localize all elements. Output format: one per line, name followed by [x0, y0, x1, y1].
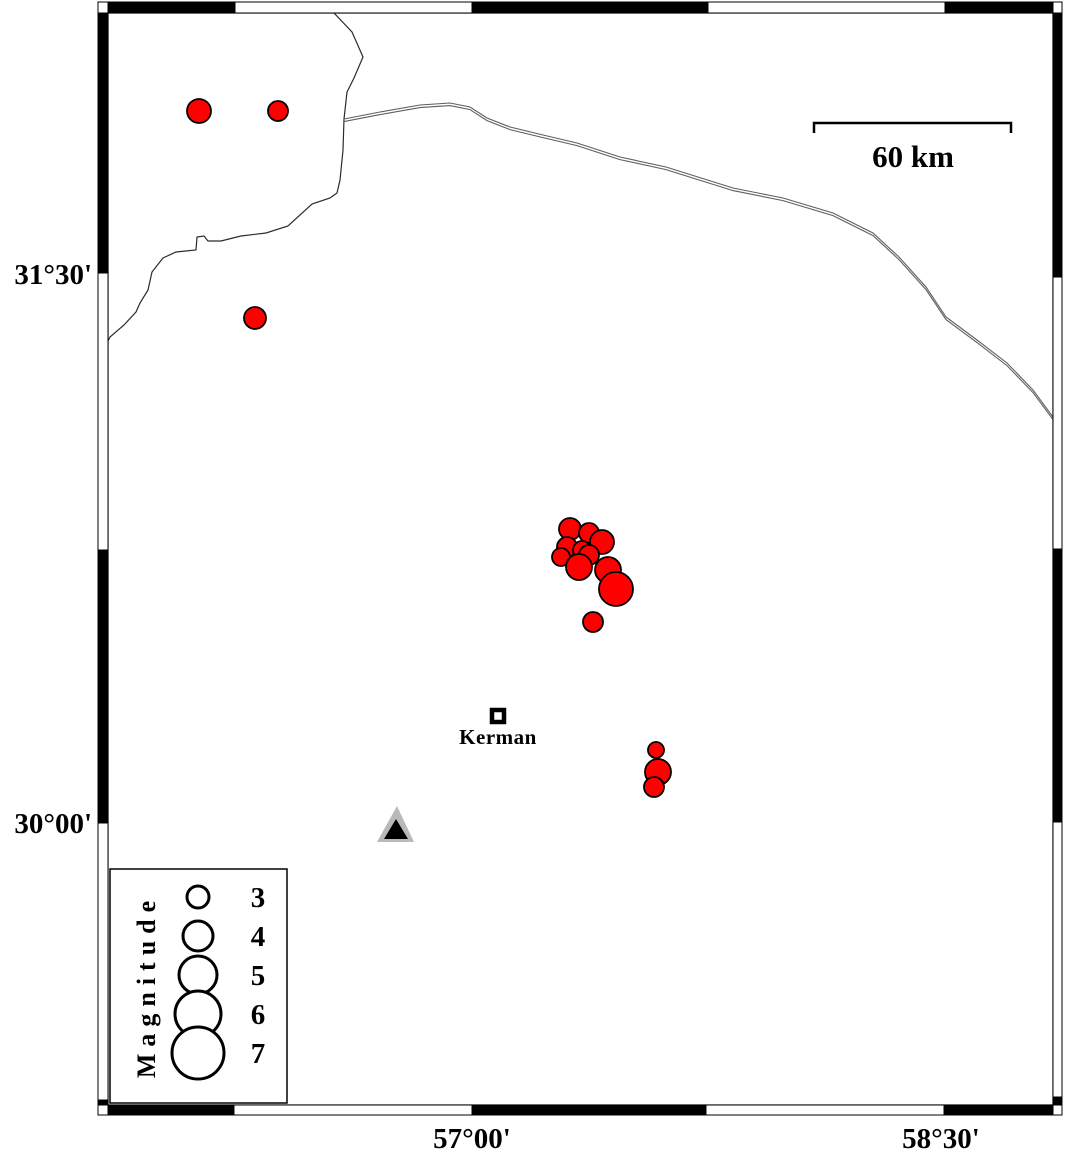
frame-segment-left: [98, 13, 108, 273]
earthquake-marker: [648, 742, 664, 758]
frame-segment-top: [108, 2, 235, 13]
earthquake-marker: [644, 777, 664, 797]
city-marker-square: [492, 710, 504, 722]
earthquake-marker: [583, 612, 603, 632]
frame-segment-right: [1053, 13, 1062, 277]
legend-magnitude-label: 5: [251, 960, 266, 992]
earthquake-marker: [268, 101, 288, 121]
legend-magnitude-label: 7: [251, 1038, 266, 1070]
axis-label-left: 30°00': [14, 808, 92, 840]
frame-segment-top: [708, 2, 945, 13]
frame-segment-left: [98, 1100, 108, 1105]
frame-segment-right: [1053, 549, 1062, 822]
frame-segment-top: [945, 2, 1053, 13]
frame-segment-bottom: [108, 1105, 234, 1115]
frame-segment-right: [1053, 822, 1062, 1097]
legend-magnitude-label: 4: [251, 921, 266, 953]
legend-magnitude-circle: [183, 921, 213, 951]
axis-label-left: 31°30': [14, 259, 92, 291]
frame-corner: [1053, 1105, 1062, 1115]
seismicity-figure: Kerman 60 km 31°30'30°00'57°00'58°30' Ma…: [0, 0, 1066, 1154]
earthquake-marker: [599, 572, 633, 606]
frame-segment-bottom: [234, 1105, 472, 1115]
frame-segment-bottom: [706, 1105, 944, 1115]
frame-segment-right: [1053, 277, 1062, 549]
legend: Magnitude 34567: [110, 869, 287, 1103]
frame-segment-left: [98, 550, 108, 823]
earthquake-marker: [187, 99, 211, 123]
city-label: Kerman: [459, 725, 537, 749]
frame-segment-top: [235, 2, 472, 13]
legend-magnitude-label: 3: [251, 882, 266, 914]
frame-corner: [1053, 2, 1062, 13]
frame-segment-bottom: [944, 1105, 1053, 1115]
legend-magnitude-circle: [172, 1027, 224, 1079]
frame-corner: [98, 1105, 108, 1115]
earthquake-marker: [566, 554, 592, 580]
legend-magnitude-label: 6: [251, 999, 266, 1031]
frame-segment-right: [1053, 1097, 1062, 1105]
legend-magnitude-circle: [187, 886, 209, 908]
axis-label-bottom: 58°30': [902, 1123, 980, 1154]
frame-corner: [98, 2, 108, 13]
axis-label-bottom: 57°00': [433, 1123, 511, 1154]
legend-magnitude-circle: [179, 956, 217, 994]
legend-title: Magnitude: [132, 894, 161, 1078]
frame-segment-bottom: [472, 1105, 706, 1115]
scale-bar-label: 60 km: [872, 139, 954, 174]
frame-segment-top: [472, 2, 708, 13]
frame-segment-left: [98, 273, 108, 550]
frame-segment-left: [98, 823, 108, 1100]
seismicity-map-svg: Kerman 60 km 31°30'30°00'57°00'58°30' Ma…: [0, 0, 1066, 1154]
earthquake-marker: [244, 307, 266, 329]
